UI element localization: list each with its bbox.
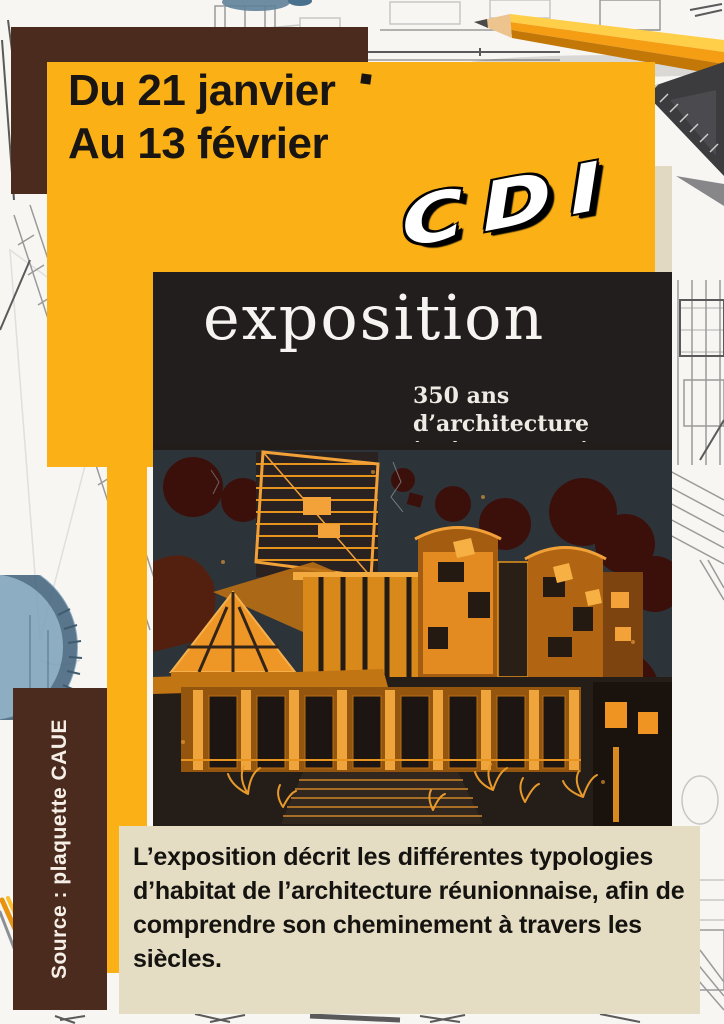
subtitle-line-1: 350 ans d’architecture bbox=[413, 382, 672, 438]
date-line-1: Du 21 janvier bbox=[68, 64, 335, 117]
date-line-2: Au 13 février bbox=[68, 117, 335, 170]
date-range: Du 21 janvier Au 13 février bbox=[68, 64, 335, 170]
architecture-drawing bbox=[153, 442, 672, 826]
exposition-title: exposition bbox=[203, 276, 545, 360]
source-banner: Source : plaquette CAUE bbox=[13, 688, 107, 1010]
beige-edge bbox=[655, 166, 672, 273]
decorative-dot bbox=[360, 73, 371, 84]
poster-page: Du 21 janvier Au 13 février exposition 3… bbox=[0, 0, 724, 1024]
source-label: Source : plaquette CAUE bbox=[48, 719, 72, 979]
description-box: L’exposition décrit les différentes typo… bbox=[119, 826, 700, 1014]
exposition-poster: exposition 350 ans d’architecture à l’îl… bbox=[153, 272, 672, 826]
description-text: L’exposition décrit les différentes typo… bbox=[119, 826, 700, 976]
